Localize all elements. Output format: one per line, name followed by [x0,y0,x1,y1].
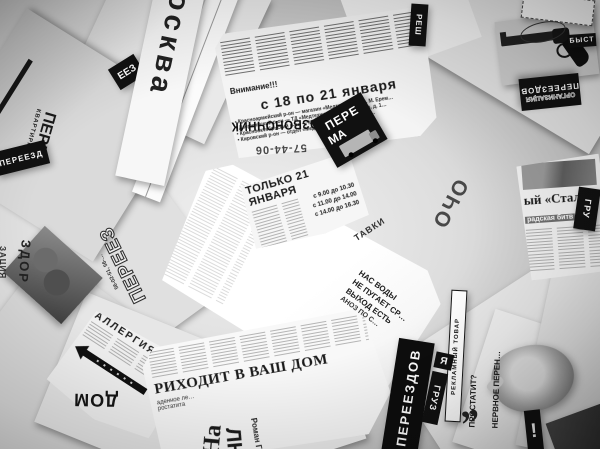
phone-number-text: 57-44-06 [254,141,307,156]
resh-chip-text: РЕШ [413,14,423,36]
newspaper-collage-photo: Москва ЕЕЗ КВАРТИРНЫЙ ПЕРЕЕ ПЕРЕЕЗД Вним… [0,0,600,449]
resh-vertical-chip: РЕШ [409,3,429,46]
gruz-chip-text: ГРУЗ [427,384,442,412]
byst-chip-text: БЫСТ [569,36,594,45]
gru-chip-text: ГРУ [581,199,594,220]
organization-box: ОРГАНИЗАЦИЯ ПЕРЕЕЗДОВ [518,73,581,111]
ya-chip-text: Я [439,355,448,367]
byst-chip: БЫСТ [568,33,597,48]
lyu-big-text: ЛЮ [220,427,247,449]
ocho-letters: ОЧО [429,166,504,245]
dom-text: ДОМ [73,390,118,411]
big-quote-marks: „ [456,388,503,435]
ya-chip: Я [433,351,454,370]
phone-number-upside-down: 57-44-06 [243,144,308,160]
pereezd-chip-text: ПЕРЕЕЗД [0,148,44,168]
zaciya-vertical: ЗАЦИЯ [0,246,14,312]
truck-wheel [347,151,354,158]
exclamation-text: ! [529,419,538,443]
dom-upside-down: ДОМ [64,386,118,411]
zdor-text: ЗДОР [16,239,34,284]
stalingrad-subhead: радская битв [525,213,576,223]
attention-text: Внимание!!! [229,80,278,96]
pereezdov-strip-text: ПЕРЕЕЗДОВ [393,347,423,447]
zaciya-text: ЗАЦИЯ [0,246,7,279]
revolver-sight [500,32,507,39]
battle-photo [521,159,597,190]
ocho-text: ОЧО [429,174,474,232]
stalingrad-columns [526,224,600,271]
roman-byline: Роман Г [249,417,263,449]
